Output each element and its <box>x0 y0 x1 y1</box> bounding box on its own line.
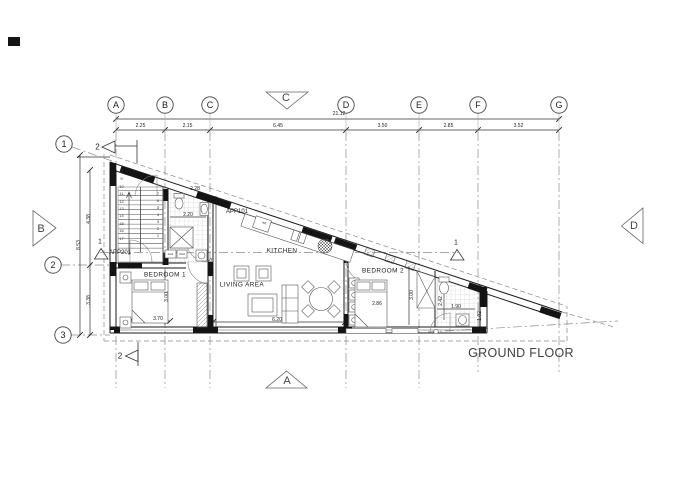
door-tag-1: AH1 <box>168 252 174 256</box>
dim-row-2-3: 3.38 <box>86 295 92 305</box>
grid-column-f: F <box>475 100 481 110</box>
dim-f-g: 3.52 <box>514 123 524 129</box>
dim-row-1-2: 4.38 <box>86 214 92 224</box>
stair-step-numbers-down: 7 6 5 4 3 2 1 <box>154 190 162 239</box>
room-label-living: LIVING AREA <box>220 282 264 289</box>
grid-column-b: B <box>162 100 168 110</box>
grid-column-d: D <box>343 100 350 110</box>
grid-column-c: C <box>207 100 214 110</box>
section1-marker-right: 1 <box>454 239 458 246</box>
floor-plan-sheet: A B C D E F G 1 2 3 21.12 2.25 2.15 6.45… <box>0 0 674 482</box>
section1-marker-left: 1 <box>98 239 102 246</box>
room-label-bedroom2: BEDROOM 2 <box>362 268 404 275</box>
dim-bath2-depth: 2.42 <box>438 296 444 306</box>
dim-bath1-width: 2.20 <box>183 212 193 218</box>
total-width-dim: 21.12 <box>333 111 346 117</box>
elevation-marker-bottom: A <box>283 375 290 387</box>
total-height-dim: 8.53 <box>76 240 82 250</box>
dim-bath2-width: 1.90 <box>451 304 461 310</box>
dim-b-c: 2.15 <box>183 123 193 129</box>
dim-bed1-depth: 3.00 <box>164 292 170 302</box>
grid-column-g: G <box>555 100 562 110</box>
grid-column-e: E <box>416 100 422 110</box>
dim-living-width: 6.20 <box>272 317 282 323</box>
living-furniture <box>234 266 340 323</box>
floor-title: GROUND FLOOR <box>468 346 574 360</box>
dim-bed2-depth: 3.00 <box>409 290 415 300</box>
grid-row-3: 3 <box>60 330 65 340</box>
grid-row-2: 2 <box>50 260 55 270</box>
door-tag-2: AH2 <box>179 252 185 256</box>
section2-marker-bottom: 2 <box>118 351 122 360</box>
dim-d-e: 3.50 <box>378 123 388 129</box>
grid-row-1: 1 <box>61 139 66 149</box>
section2-marker-top: 2 <box>95 143 99 152</box>
stair-step-numbers-up: 8 9 10 11 12 13 14 15 16 17 <box>117 168 126 242</box>
apartment-label-app201: APP201 <box>109 250 131 256</box>
dim-bed2-width: 2.86 <box>372 301 382 307</box>
elevation-marker-right: D <box>630 220 638 232</box>
elevation-marker-left: B <box>37 223 44 235</box>
dim-bath2-tip: 1.02 <box>477 311 483 321</box>
dim-e-f: 2.85 <box>444 123 454 129</box>
room-label-bedroom1: BEDROOM 1 <box>144 272 186 279</box>
elevation-marker-top: C <box>282 92 290 104</box>
dim-a-b: 2.25 <box>136 123 146 129</box>
room-label-kitchen: KITCHEN <box>267 248 298 255</box>
apartment-label-app101: APP101 <box>226 209 248 215</box>
dim-bed1-width: 3.70 <box>153 316 163 322</box>
dim-living-depth: 6.35 <box>208 258 214 268</box>
dim-bath1-top: 2.28 <box>190 186 200 192</box>
dim-c-d: 6.45 <box>273 123 283 129</box>
grid-column-a: A <box>113 100 119 110</box>
